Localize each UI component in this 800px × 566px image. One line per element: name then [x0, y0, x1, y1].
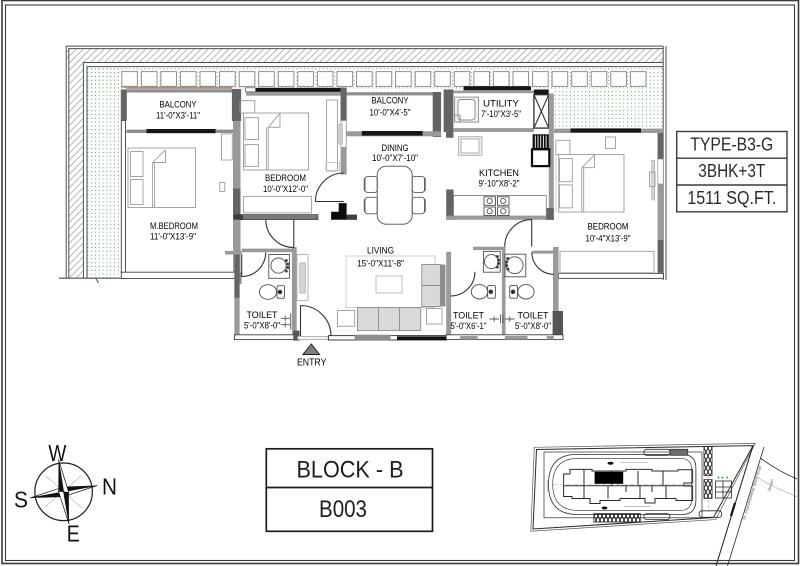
svg-text:N: N [102, 474, 117, 500]
svg-text:11'-0"X3'-11": 11'-0"X3'-11" [156, 111, 200, 121]
svg-text:E: E [67, 521, 80, 547]
svg-text:9'-10"X8'-2": 9'-10"X8'-2" [479, 179, 520, 189]
svg-text:11'-0"X13'-9": 11'-0"X13'-9" [150, 232, 196, 242]
svg-text:LIVING: LIVING [367, 245, 394, 256]
svg-text:ENTRY: ENTRY [297, 357, 327, 369]
svg-text:10'-0"X12'-0": 10'-0"X12'-0" [263, 184, 308, 194]
svg-text:TOILET: TOILET [453, 310, 484, 321]
svg-text:3BHK+3T: 3BHK+3T [698, 161, 765, 181]
svg-text:DINING: DINING [382, 142, 409, 153]
svg-text:BEDROOM: BEDROOM [265, 172, 306, 183]
svg-text:M.BEDROOM: M.BEDROOM [150, 220, 198, 231]
svg-text:15'-0"X11'-8": 15'-0"X11'-8" [357, 259, 404, 269]
svg-text:BALCONY: BALCONY [372, 95, 410, 106]
svg-text:TOILET: TOILET [518, 310, 549, 321]
svg-text:5'-0"X6'-1": 5'-0"X6'-1" [451, 321, 487, 331]
svg-text:TYPE-B3-G: TYPE-B3-G [690, 135, 773, 155]
svg-text:BLOCK - B: BLOCK - B [297, 457, 404, 484]
svg-text:1511 SQ.FT.: 1511 SQ.FT. [687, 188, 776, 208]
svg-text:7'-10"X3'-5": 7'-10"X3'-5" [481, 109, 521, 119]
svg-text:TOILET: TOILET [247, 309, 278, 320]
svg-text:W: W [48, 440, 66, 466]
svg-text:5'-0"X8'-0": 5'-0"X8'-0" [244, 321, 280, 331]
svg-text:UTILITY: UTILITY [483, 98, 520, 109]
svg-text:10'-0"X4'-5": 10'-0"X4'-5" [370, 108, 411, 118]
svg-text:S: S [14, 487, 28, 513]
svg-text:10'-4"X13'-9": 10'-4"X13'-9" [586, 234, 631, 244]
svg-text:BEDROOM: BEDROOM [588, 221, 629, 232]
svg-text:B003: B003 [319, 496, 367, 523]
svg-text:10'-0"X7'-10": 10'-0"X7'-10" [372, 153, 418, 163]
svg-text:5'-0"X8'-0": 5'-0"X8'-0" [515, 321, 551, 331]
svg-text:BALCONY: BALCONY [160, 99, 198, 110]
svg-text:KITCHEN: KITCHEN [479, 167, 519, 178]
